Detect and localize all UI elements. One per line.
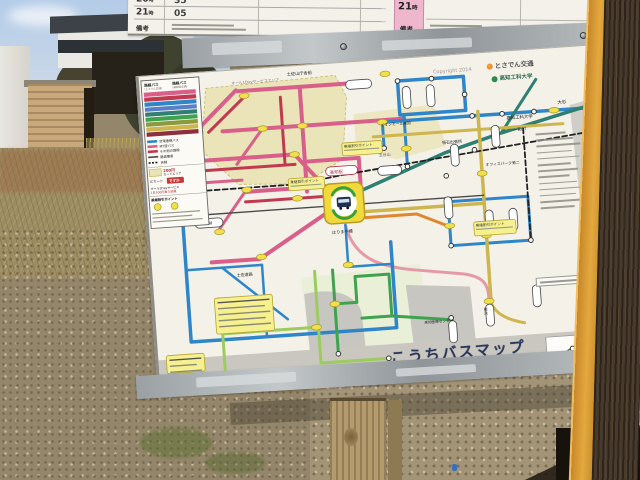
bus-stop [242,187,252,193]
bus-stop [549,107,559,113]
note-textline [538,168,578,172]
shed [28,84,92,152]
bus-stop [257,125,267,131]
note-textline [540,279,580,284]
screw [340,43,347,50]
note-textline [541,205,575,209]
worn-patch [196,372,296,388]
station-ring [528,238,533,243]
worn-patch [396,364,476,377]
minute-cell: 05 [174,9,187,19]
hour-cell: 21時 [398,1,418,12]
bus-stop [214,229,224,235]
note-textline [536,137,573,141]
legend-text: ですか [169,177,181,183]
worn-patch [212,41,282,56]
hour-cell: 20時 [136,0,154,5]
bus-stop [256,254,266,260]
station-ring [405,164,410,169]
hour-cell: 21時 [136,8,154,18]
table-line [426,19,608,22]
note-textline [539,175,570,179]
station-ring [395,79,400,84]
weeds [205,452,265,474]
station-capsule [448,321,458,344]
bus-route [209,214,328,262]
station-capsule [345,79,372,90]
legend-chip [149,169,161,177]
map-label: 桂浜 [483,307,490,316]
weeds [140,428,212,458]
transfer-point-icon [154,203,161,210]
note-textline [536,143,580,148]
legend-text: JR線 [159,159,168,165]
station-ring [336,351,341,356]
note-textline [172,24,234,27]
station-ring [532,109,537,114]
bus-route [365,212,448,232]
map-legend: 路線バス路線バス(とさでん交通)(高知県交通)空港連絡バスMY遊バスその他の路線… [141,77,209,229]
bus-stop [401,145,411,151]
bus-stop [343,262,353,268]
minute-cell: 35 [174,0,187,6]
map-label: はりまや橋 [332,227,354,236]
wooden-post [330,398,386,480]
station-ring [470,113,475,118]
bus-stop [297,123,307,129]
note-textline [539,180,577,184]
map-label: 土佐道路 [236,271,252,278]
bus-stop [330,301,340,307]
station-capsule [377,165,402,176]
station-ring [500,111,505,116]
note-textline [540,198,583,203]
bus-stop [484,298,494,304]
bus-map-poster: 土佐山庁舎前オール1Dayサービスエリア大杉領石出張所オフィスパーク第二高知工科… [136,44,613,391]
station-capsule [444,197,454,220]
bus-route [246,196,324,201]
bus-stop [311,324,321,330]
bus-route [523,128,531,242]
route-map-svg: 土佐山庁舎前オール1Dayサービスエリア大杉領石出張所オフィスパーク第二高知工科… [139,45,613,391]
bus-stop [477,170,487,176]
bus-stop [380,71,390,77]
station-capsule [426,85,436,108]
blue-debris [452,464,457,471]
wooden-post [388,400,402,480]
bus-stop [292,195,302,201]
map-label: オフィスパーク第二 [485,160,520,167]
worn-patch [382,37,472,50]
station-ring [444,173,449,178]
note-textline [537,155,579,160]
note-textline [539,186,584,191]
legend-text: ICカード [150,178,163,184]
station-ring [449,243,454,248]
note-textline [540,193,576,197]
legend-chip [149,162,159,163]
note-textline [537,150,572,154]
university-logo-icon [491,76,497,82]
station-capsule [450,144,460,167]
station-ring [472,147,477,152]
map-zone [406,280,476,346]
note-textline [538,162,571,166]
station-ring [462,92,467,97]
transfer-point-icon [171,202,178,209]
note-label: 備考 [136,23,149,33]
bus-stop [289,151,299,157]
photo-scene: 20時 35 21時 05 備考 21時 備考 土佐山庁舎前オ [0,0,640,480]
operator-logo-icon [487,63,493,69]
station-ring [429,76,434,81]
station-capsule [402,86,412,109]
station-capsule [491,125,501,148]
bus-route [491,301,524,325]
note-textline [172,28,246,31]
map-label: 一宮BT [513,125,527,132]
legend-text: 路面電車 [160,153,174,159]
bus-route [365,203,485,211]
map-label: 領石出張所 [442,138,462,145]
bus-stop [445,223,455,229]
map-label: 土佐山庁舎前 [287,69,313,78]
map-label: 大杉 [557,98,567,106]
bus-stop [239,93,249,99]
wood-knot [344,428,358,446]
station-capsule [532,285,542,308]
